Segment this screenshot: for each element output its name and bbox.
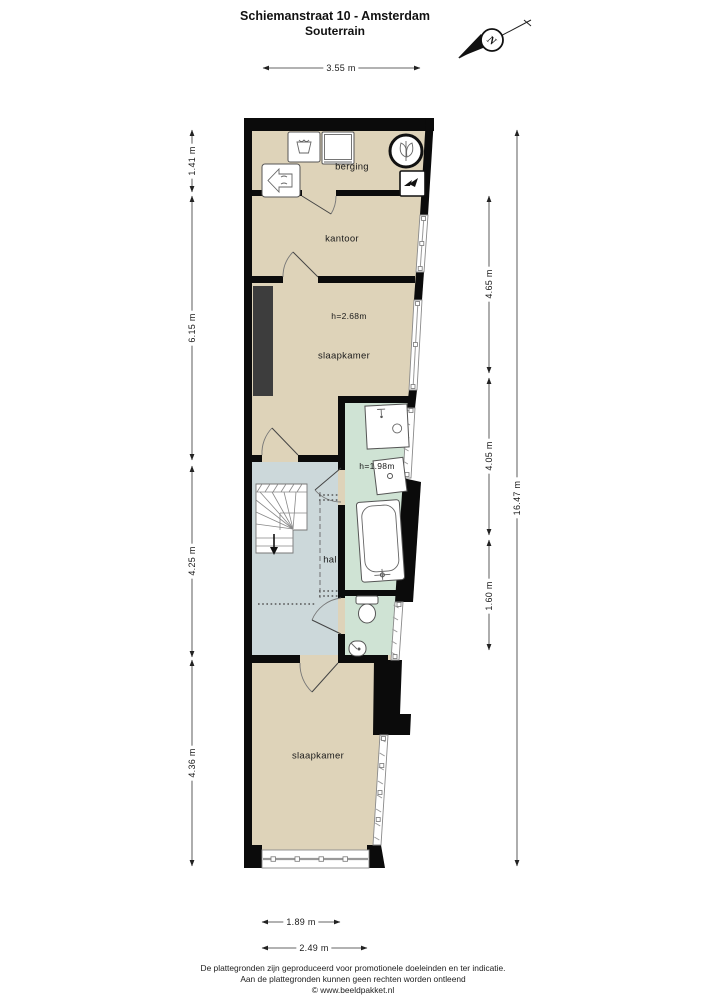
dim-left-2: 6.15 m [187,310,197,345]
dim-right-1: 4.65 m [484,266,494,301]
bathtub-icon [356,500,404,583]
electric-meter-icon [400,171,425,196]
dim-bottom-1: 1.89 m [283,917,318,927]
dim-left-1: 1.41 m [187,143,197,178]
dim-left-4: 4.36 m [187,745,197,780]
washbasin-icon [365,404,409,449]
room-label-hal: hal [323,555,337,566]
dim-bottom-2: 2.49 m [296,943,331,953]
floorplan-page: Schiemanstraat 10 - Amsterdam Souterrain [0,0,707,1000]
heater-unit-icon [262,164,300,197]
dim-left-3: 4.25 m [187,543,197,578]
room-label-berging: berging [335,162,369,173]
dim-right-2: 4.05 m [484,438,494,473]
ventilation-unit-icon [390,135,422,167]
dryer-icon [322,132,354,164]
floorplan-drawing: N [0,0,707,1000]
washing-machine-icon [288,132,320,162]
height-label-badkamer: h=1.98m [359,461,394,471]
room-label-kantoor: kantoor [325,234,359,245]
dim-right-total: 16.47 m [512,478,522,519]
dim-right-3: 1.60 m [484,578,494,613]
height-label-slaapkamer: h=2.68m [331,311,366,321]
footer-disclaimer-line2: Aan de plattegronden kunnen geen rechten… [240,974,465,984]
corner-sink-icon [349,641,366,656]
compass-icon: N [458,20,531,58]
room-label-slaapkamer-bottom: slaapkamer [292,751,344,762]
chimney-recess [253,286,273,396]
room-label-slaapkamer-top: slaapkamer [318,351,370,362]
dim-top: 3.55 m [323,63,358,73]
footer-copyright: © www.beeldpakket.nl [312,985,395,995]
footer-disclaimer-line1: De plattegronden zijn geproduceerd voor … [201,963,506,973]
